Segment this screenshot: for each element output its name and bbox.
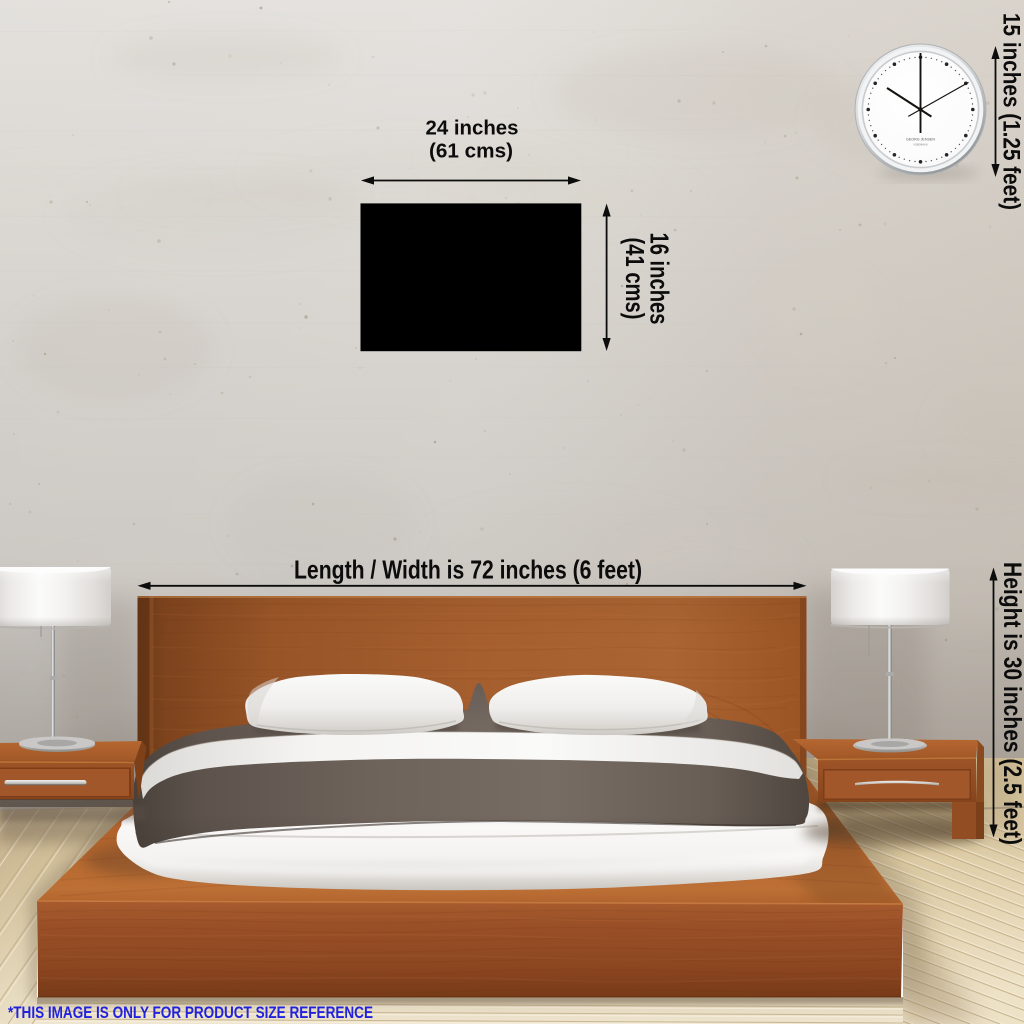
svg-text:24 inches: 24 inches <box>426 117 519 140</box>
svg-text:Height is 30 inches (2.5 feet): Height is 30 inches (2.5 feet) <box>998 562 1024 845</box>
svg-text:(61 cms): (61 cms) <box>429 140 513 163</box>
svg-text:(41 cms): (41 cms) <box>620 238 650 320</box>
svg-text:Length / Width is 72 inches (6: Length / Width is 72 inches (6 feet) <box>294 555 642 585</box>
svg-text:*THIS IMAGE IS ONLY FOR PRODUC: *THIS IMAGE IS ONLY FOR PRODUCT SIZE REF… <box>8 1004 373 1022</box>
svg-text:15 inches (1.25 feet): 15 inches (1.25 feet) <box>998 13 1024 210</box>
svg-text:GEORG JENSEN: GEORG JENSEN <box>906 137 935 142</box>
svg-text:KOBENHAVN: KOBENHAVN <box>914 144 928 147</box>
